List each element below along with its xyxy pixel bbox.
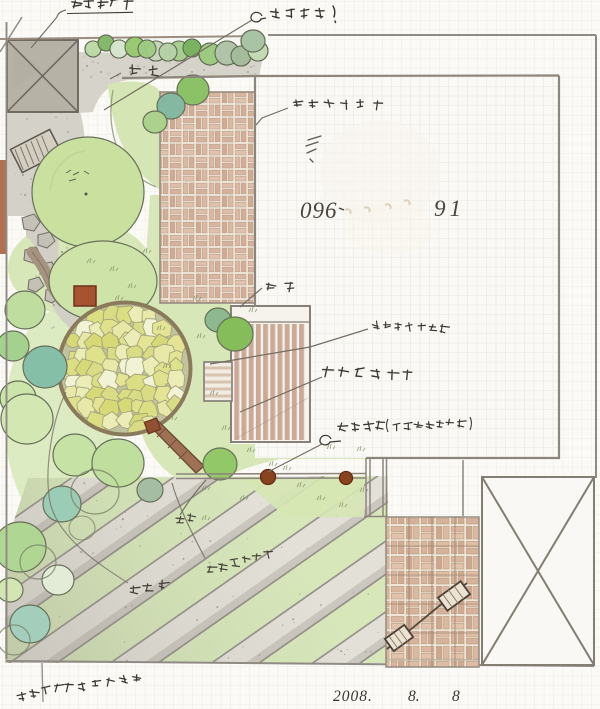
svg-text:8: 8 (452, 688, 460, 705)
svg-text:2008.: 2008. (333, 688, 373, 705)
svg-text:8.: 8. (408, 688, 420, 705)
svg-text:096: 096 (300, 198, 338, 223)
svg-text:91: 91 (434, 196, 465, 221)
